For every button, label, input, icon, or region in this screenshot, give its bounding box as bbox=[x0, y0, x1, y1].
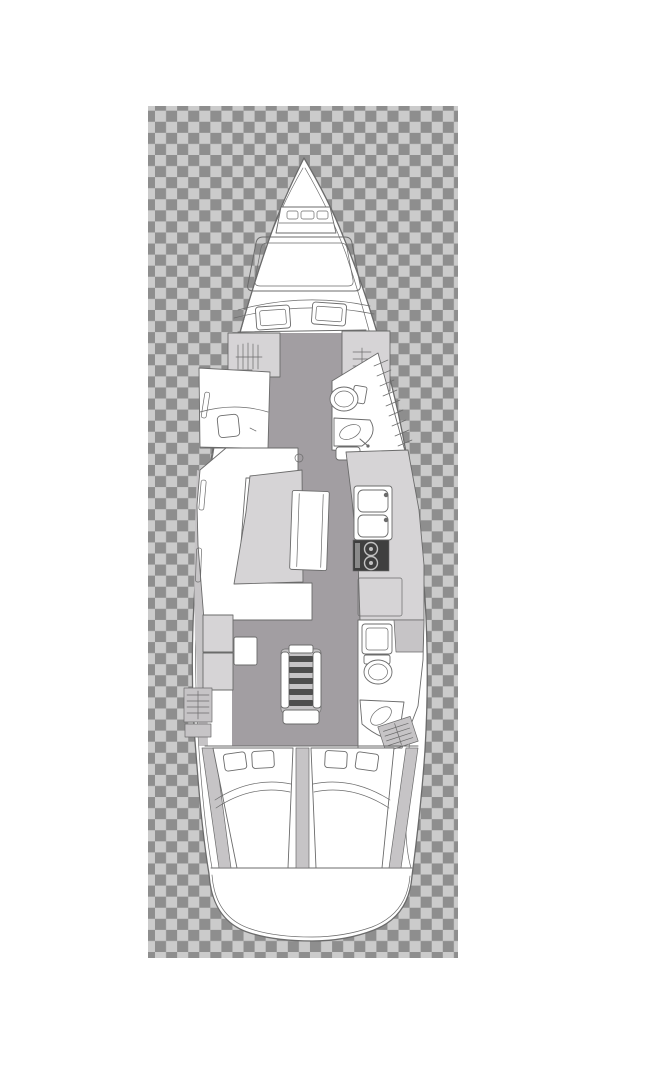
stairs-rail-starboard bbox=[313, 652, 321, 708]
port-cabinet-upper bbox=[203, 615, 233, 652]
stairs-top-cap bbox=[289, 645, 313, 653]
galley-group bbox=[346, 450, 424, 620]
deck-hatch-port bbox=[255, 305, 291, 330]
shower-icon bbox=[362, 624, 392, 654]
pillow-icon bbox=[355, 752, 379, 772]
center-divider bbox=[296, 748, 309, 868]
stairs-landing bbox=[283, 710, 319, 724]
deck-hatch-starboard bbox=[311, 302, 346, 326]
port-cabinet-lower bbox=[203, 653, 233, 690]
port-step-locker bbox=[185, 724, 211, 737]
table-folding-leaf bbox=[290, 490, 330, 570]
toilet-icon bbox=[364, 655, 392, 684]
pillow-icon bbox=[223, 752, 247, 772]
screenshot-canvas bbox=[0, 0, 648, 1080]
companionway-group bbox=[281, 645, 321, 724]
floor-plan-svg bbox=[0, 0, 648, 1080]
double-sink-icon bbox=[354, 486, 392, 540]
chart-seat bbox=[234, 637, 257, 665]
pillow-icon bbox=[252, 750, 275, 768]
stairs-rail-port bbox=[281, 652, 289, 708]
aft-head-cabinet bbox=[394, 620, 424, 652]
aft-head-group bbox=[358, 620, 424, 752]
aft-cabin-starboard-berth bbox=[311, 748, 394, 868]
stove-burners-icon bbox=[353, 540, 389, 571]
pillow-icon bbox=[325, 750, 348, 768]
pillow-icon bbox=[217, 414, 240, 438]
